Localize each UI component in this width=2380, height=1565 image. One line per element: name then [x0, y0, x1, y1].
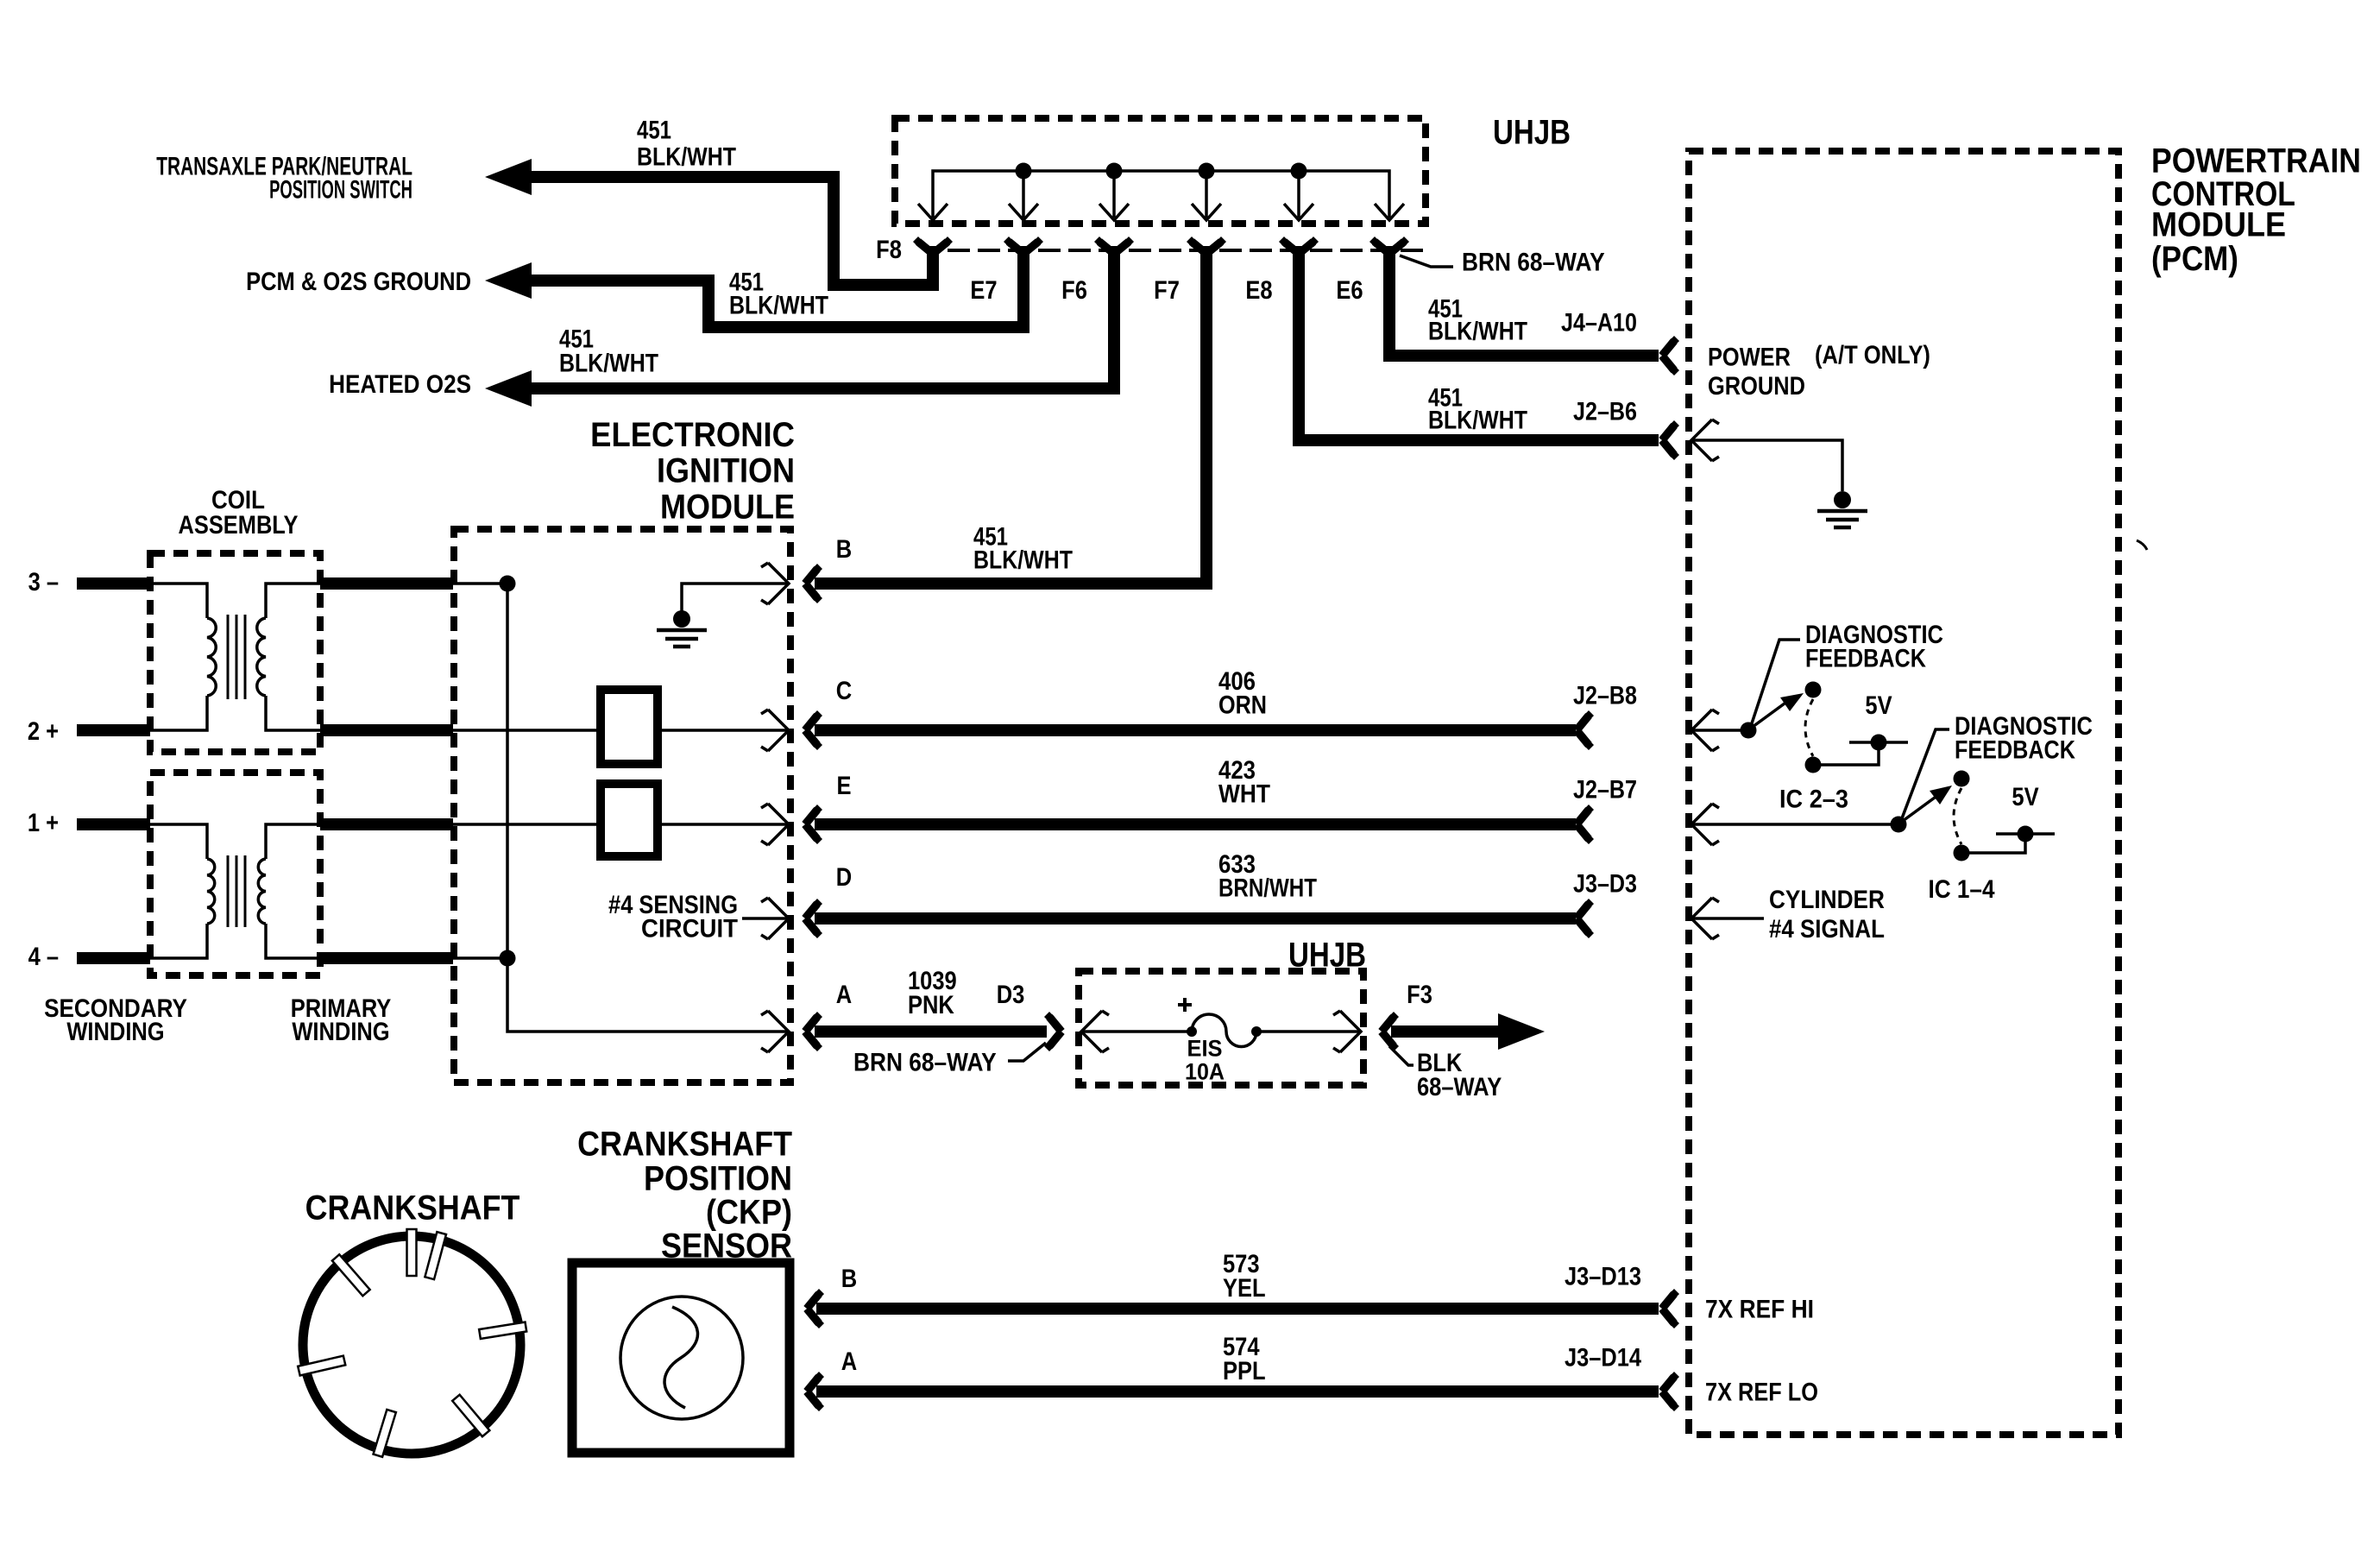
svg-text:WINDING: WINDING — [292, 1017, 389, 1045]
svg-text:CRANKSHAFT: CRANKSHAFT — [305, 1190, 520, 1227]
svg-text:J4–A10: J4–A10 — [1561, 307, 1637, 337]
svg-text:(A/T ONLY): (A/T ONLY) — [1815, 340, 1930, 369]
svg-text:UHJB: UHJB — [1288, 936, 1366, 975]
svg-text:J2–B6: J2–B6 — [1573, 396, 1637, 426]
svg-text:BRN/WHT: BRN/WHT — [1218, 873, 1317, 902]
svg-text:F3: F3 — [1407, 980, 1432, 1008]
svg-text:5V: 5V — [2012, 782, 2039, 811]
svg-text:68–WAY: 68–WAY — [1417, 1072, 1502, 1101]
svg-text:MODULE: MODULE — [660, 489, 795, 527]
svg-text:F8: F8 — [876, 235, 902, 263]
svg-text:B: B — [836, 534, 852, 563]
svg-text:WHT: WHT — [1218, 779, 1270, 808]
svg-text:BLK/WHT: BLK/WHT — [1428, 405, 1527, 434]
svg-text:BLK/WHT: BLK/WHT — [637, 142, 736, 171]
svg-text:IGNITION: IGNITION — [657, 452, 795, 490]
svg-text:E8: E8 — [1245, 275, 1272, 304]
svg-text:PPL: PPL — [1223, 1356, 1266, 1385]
svg-text:C: C — [836, 676, 852, 704]
svg-text:(PCM): (PCM) — [2151, 239, 2238, 278]
svg-text:GROUND: GROUND — [1708, 371, 1805, 400]
svg-text:BRN 68–WAY: BRN 68–WAY — [853, 1047, 997, 1076]
svg-text:2 +: 2 + — [28, 716, 59, 745]
svg-text:BLK/WHT: BLK/WHT — [973, 545, 1073, 574]
svg-text:J2–B7: J2–B7 — [1573, 774, 1637, 804]
svg-text:HEATED O2S: HEATED O2S — [329, 369, 471, 398]
svg-text:J3–D13: J3–D13 — [1565, 1261, 1641, 1290]
svg-text:FEEDBACK: FEEDBACK — [1955, 735, 2075, 764]
svg-text:3 –: 3 – — [28, 567, 59, 596]
svg-text:ELECTRONIC: ELECTRONIC — [590, 416, 795, 455]
svg-text:J3–D3: J3–D3 — [1573, 868, 1637, 898]
svg-text:POSITION: POSITION — [644, 1160, 792, 1198]
svg-text:YEL: YEL — [1223, 1273, 1266, 1302]
svg-text:10A: 10A — [1185, 1057, 1225, 1084]
svg-text:E7: E7 — [970, 275, 997, 304]
svg-text:#4 SIGNAL: #4 SIGNAL — [1769, 914, 1885, 943]
svg-text:D3: D3 — [997, 980, 1025, 1008]
svg-text:ORN: ORN — [1218, 690, 1267, 719]
svg-text:J3–D14: J3–D14 — [1565, 1342, 1641, 1371]
svg-text:F7: F7 — [1154, 275, 1180, 304]
svg-text:1 +: 1 + — [28, 808, 59, 836]
svg-text:POWER: POWER — [1708, 342, 1791, 370]
svg-text:4 –: 4 – — [28, 942, 59, 970]
svg-text:B: B — [841, 1264, 857, 1292]
svg-text:CRANKSHAFT: CRANKSHAFT — [577, 1126, 792, 1164]
svg-text:BRN 68–WAY: BRN 68–WAY — [1462, 247, 1605, 276]
svg-text:E6: E6 — [1336, 275, 1363, 304]
svg-text:5V: 5V — [1865, 691, 1892, 719]
svg-text:IC 2–3: IC 2–3 — [1779, 785, 1848, 814]
svg-text:7X REF LO: 7X REF LO — [1705, 1377, 1818, 1405]
svg-text:(CKP): (CKP) — [706, 1194, 792, 1232]
svg-text:E: E — [836, 771, 851, 799]
svg-text:FEEDBACK: FEEDBACK — [1805, 643, 1926, 672]
svg-text:WINDING: WINDING — [66, 1017, 164, 1045]
svg-text:PNK: PNK — [908, 990, 954, 1019]
svg-text:IC 1–4: IC 1–4 — [1929, 874, 1995, 903]
svg-text:F6: F6 — [1061, 275, 1087, 304]
svg-text:BLK/WHT: BLK/WHT — [1428, 316, 1527, 345]
svg-text:D: D — [836, 862, 852, 891]
svg-text:UHJB: UHJB — [1493, 113, 1571, 152]
svg-text:POSITION SWITCH: POSITION SWITCH — [269, 175, 412, 205]
svg-text:ASSEMBLY: ASSEMBLY — [179, 510, 299, 539]
svg-text:PCM & O2S GROUND: PCM & O2S GROUND — [246, 267, 471, 295]
svg-text:451: 451 — [637, 115, 671, 144]
svg-text:BLK/WHT: BLK/WHT — [559, 348, 658, 377]
svg-text:CIRCUIT: CIRCUIT — [641, 914, 738, 943]
svg-text:A: A — [841, 1347, 857, 1375]
svg-text:BLK/WHT: BLK/WHT — [729, 290, 828, 319]
svg-text:CYLINDER: CYLINDER — [1769, 885, 1885, 913]
svg-text:A: A — [836, 980, 852, 1008]
svg-text:7X REF HI: 7X REF HI — [1705, 1294, 1814, 1323]
svg-text:J2–B8: J2–B8 — [1573, 680, 1637, 710]
